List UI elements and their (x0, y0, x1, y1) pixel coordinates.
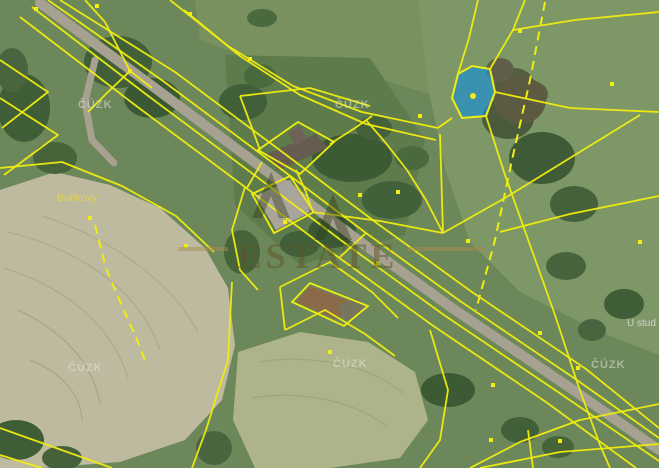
parcel-marker (283, 220, 287, 224)
parcel-marker (128, 69, 132, 73)
tree-canopy (395, 146, 429, 170)
parcel-marker (328, 350, 332, 354)
parcel-marker (491, 383, 495, 387)
parcel-marker (418, 114, 422, 118)
parcel-marker (248, 57, 252, 61)
parcel-marker (358, 193, 362, 197)
parcel-marker (558, 439, 562, 443)
parcel-marker (466, 239, 470, 243)
tree-canopy (362, 181, 422, 219)
cuzk-watermark: ČÚZK (78, 98, 113, 111)
parcel-marker (34, 7, 38, 11)
map-canvas: ESTATEČÚZKČÚZKČÚZKČÚZKČÚZKBoňkovyU stud (0, 0, 659, 468)
tree-canopy (604, 289, 644, 319)
parcel-marker (610, 82, 614, 86)
tree-canopy (312, 134, 392, 182)
cadastral-map-viewport[interactable]: ESTATEČÚZKČÚZKČÚZKČÚZKČÚZKBoňkovyU stud (0, 0, 659, 468)
parcel-marker (489, 438, 493, 442)
cuzk-watermark: ČÚZK (333, 357, 368, 370)
tree-canopy (247, 9, 277, 27)
highlighted-parcel[interactable] (452, 66, 495, 118)
cuzk-watermark: ČÚZK (335, 98, 370, 111)
parcel-marker (576, 366, 580, 370)
tree-canopy (501, 417, 539, 443)
place-name-label: Boňkovy (57, 192, 98, 204)
tree-canopy (33, 142, 77, 174)
tree-canopy (494, 76, 546, 124)
cuzk-watermark: ČÚZK (591, 358, 626, 371)
parcel-marker (518, 29, 522, 33)
parcel-marker (538, 331, 542, 335)
aerial-imagery-layer (0, 0, 659, 468)
tree-canopy (196, 431, 232, 465)
cuzk-watermark: ČÚZK (68, 361, 103, 374)
tree-canopy (546, 252, 586, 280)
highlighted-parcel-marker (470, 93, 476, 99)
parcel-marker (188, 12, 192, 16)
field-name-label: U stud (627, 318, 656, 329)
parcel-marker (638, 240, 642, 244)
parcel-marker (396, 190, 400, 194)
parcel-marker (95, 4, 99, 8)
parcel-marker (88, 216, 92, 220)
logo-watermark-text: ESTATE (238, 236, 399, 276)
tree-canopy (578, 319, 606, 341)
